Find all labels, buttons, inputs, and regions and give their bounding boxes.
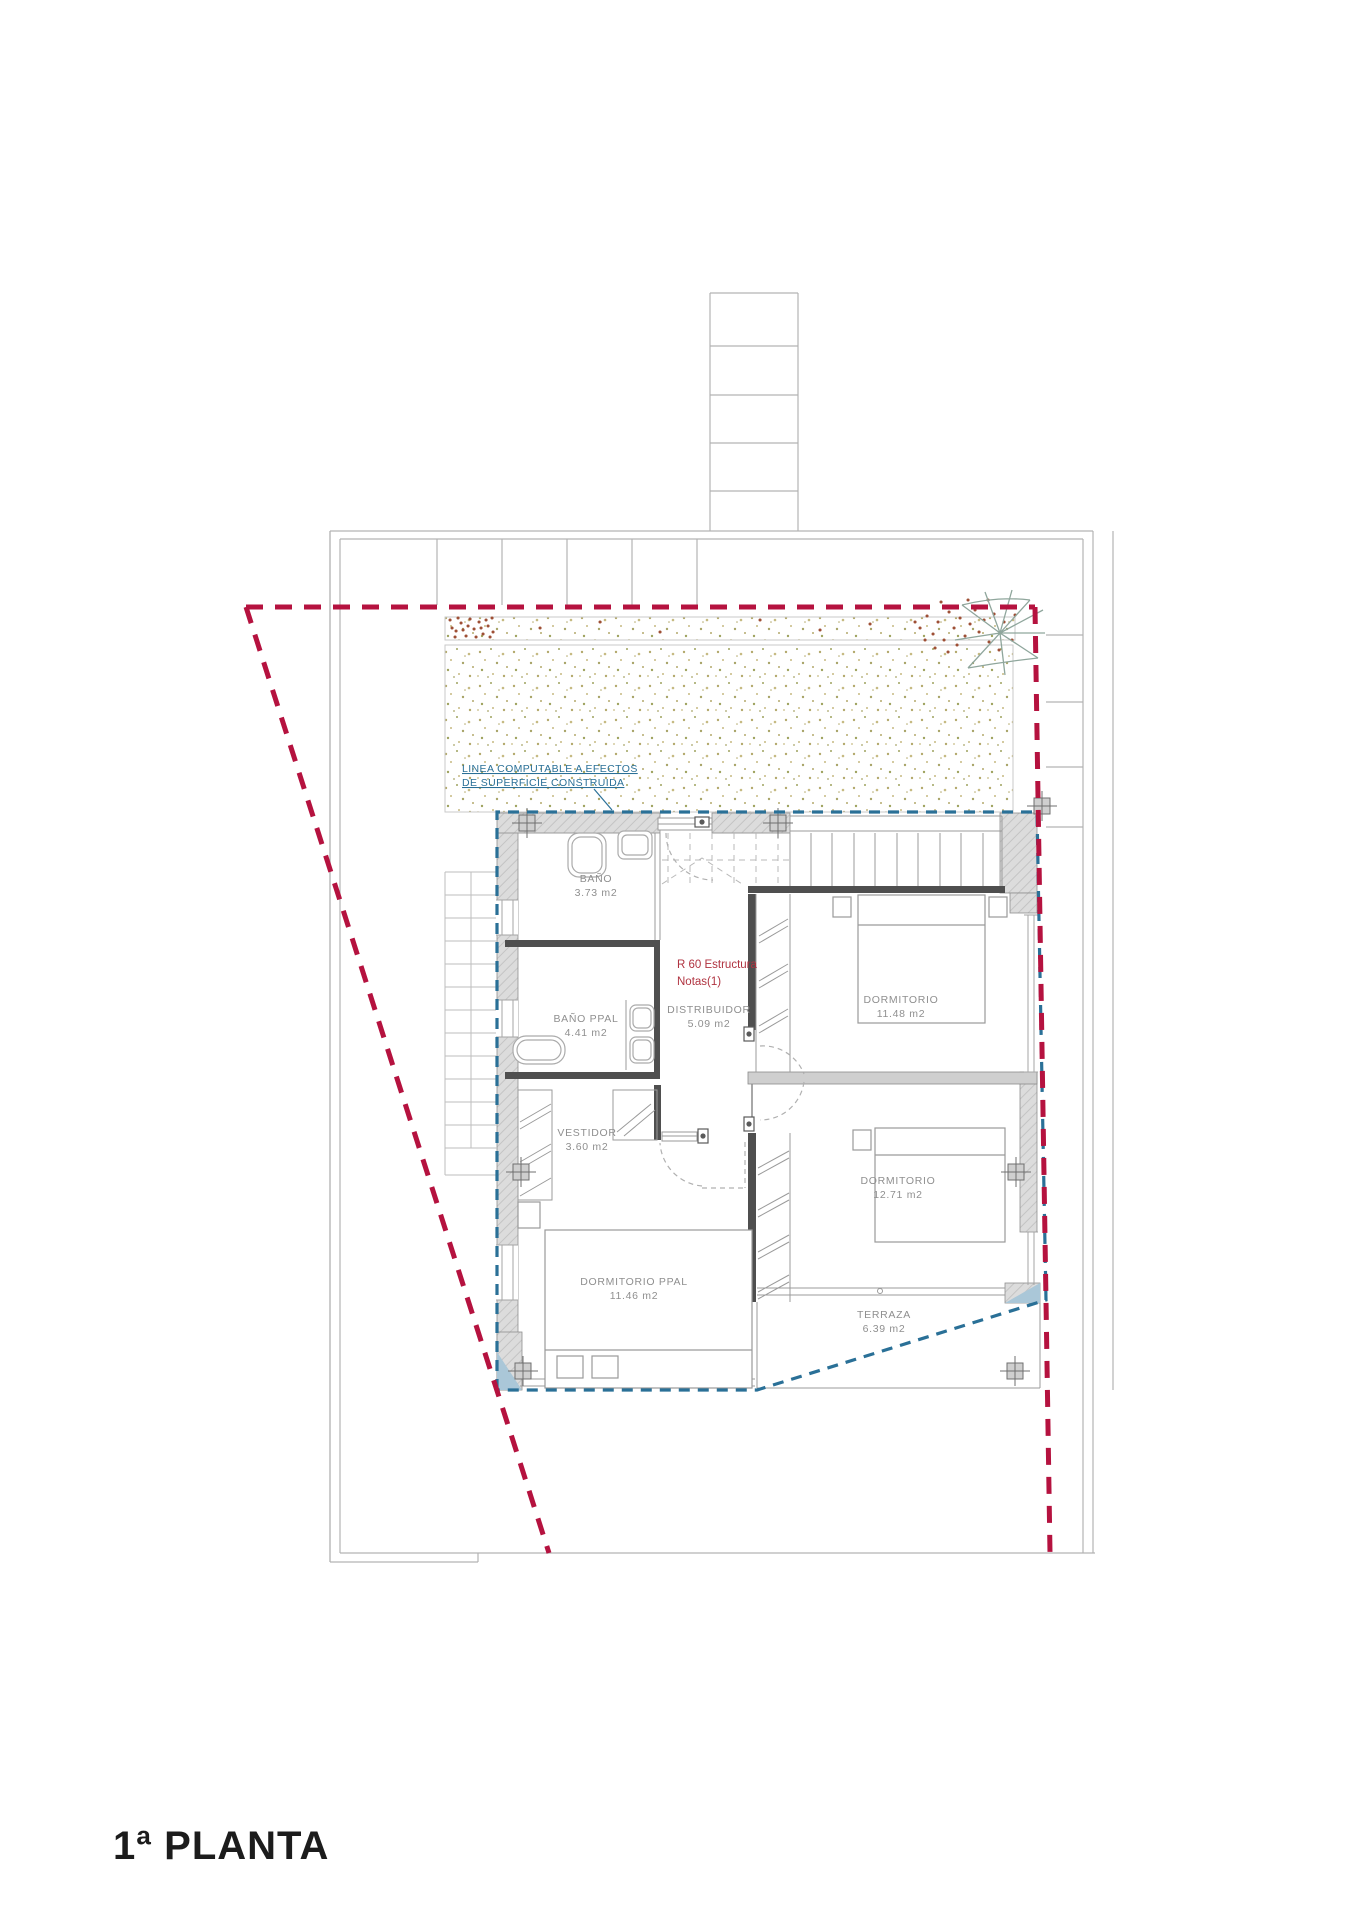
slider-handle-icon: [878, 1289, 883, 1294]
computable-note-line1: LINEA COMPUTABLE A EFECTOS: [462, 763, 638, 775]
closet-bedroom1: [759, 919, 788, 1033]
room-label-distribuidor: DISTRIBUIDOR 5.09 m2: [667, 1004, 751, 1030]
wall-top-right-chunk: [1000, 813, 1037, 893]
structure-note-line1: R 60 Estructura: [677, 959, 757, 971]
door-arc-bedroom1: [760, 1046, 804, 1074]
column-marker-icon: [1000, 1356, 1030, 1386]
door-hinge-icon: [744, 1117, 754, 1131]
plan-title: 1ª PLANTA: [113, 1824, 329, 1869]
terrace-door: [1024, 1232, 1038, 1285]
double-sink-icon: [630, 1005, 654, 1063]
structure-note-line2: Notas(1): [677, 976, 721, 988]
top-division-ticks: [437, 539, 697, 605]
stair-direction-arrow: [662, 858, 742, 884]
window-distribuidor: [662, 1132, 697, 1141]
window-left-1: [496, 900, 518, 935]
right-neighbor-lines: [1046, 531, 1113, 1390]
wall-right-mid: [1020, 1072, 1037, 1232]
garden-strip: [445, 617, 1015, 640]
window-bedroom-right: [1024, 915, 1038, 1072]
room-label-bano: BAÑO 3.73 m2: [575, 872, 618, 899]
room-area: 11.48 m2: [877, 1008, 926, 1020]
window-left-3: [496, 1245, 518, 1300]
room-label-terraza: TERRAZA 6.39 m2: [857, 1309, 911, 1335]
room-area: 11.46 m2: [610, 1290, 659, 1302]
wall-between-bedrooms: [748, 1072, 1037, 1084]
sink-icon: [618, 831, 652, 859]
room-name: DISTRIBUIDOR: [667, 1004, 751, 1016]
room-name: TERRAZA: [857, 1309, 911, 1321]
bathtub-ppal-icon: [513, 1036, 565, 1064]
entry-window-top: [658, 817, 712, 830]
exterior-stairs: [445, 872, 497, 1175]
room-name: BAÑO: [580, 872, 613, 885]
door-hinge-icon: [698, 1129, 708, 1143]
computable-note-line2: DE SUPERFICIE CONSTRUIDA: [462, 777, 624, 789]
building: [445, 791, 1057, 1390]
room-label-vestidor: VESTIDOR 3.60 m2: [557, 1127, 616, 1153]
closet-bedroom2: [758, 1151, 789, 1299]
wall-top-right-step: [1010, 893, 1037, 913]
room-area: 5.09 m2: [688, 1018, 731, 1030]
room-area: 3.73 m2: [575, 887, 618, 899]
door-arc-vestidor: [660, 1142, 745, 1188]
room-name: DORMITORIO: [860, 1175, 935, 1187]
room-label-bano-ppal: BAÑO PPAL 4.41 m2: [553, 1012, 618, 1039]
room-name: VESTIDOR: [557, 1127, 616, 1139]
floor-plan-drawing: LINEA COMPUTABLE A EFECTOS DE SUPERFICIE…: [0, 0, 1357, 1920]
door-hinge-icon: [744, 1027, 754, 1041]
room-name: DORMITORIO: [863, 994, 938, 1006]
window-left-2: [496, 1000, 518, 1037]
bathtub-icon: [568, 833, 606, 877]
upper-shaft: [710, 293, 798, 531]
room-name: BAÑO PPAL: [553, 1012, 618, 1025]
door-arc-bedroom2: [760, 1082, 804, 1120]
room-area: 12.71 m2: [873, 1189, 922, 1201]
room-name: DORMITORIO PPAL: [580, 1276, 688, 1288]
floor-plan-canvas: LINEA COMPUTABLE A EFECTOS DE SUPERFICIE…: [0, 0, 1357, 1920]
room-area: 3.60 m2: [566, 1141, 609, 1153]
room-area: 4.41 m2: [565, 1027, 608, 1039]
room-area: 6.39 m2: [863, 1323, 906, 1335]
staircase: [662, 833, 983, 886]
